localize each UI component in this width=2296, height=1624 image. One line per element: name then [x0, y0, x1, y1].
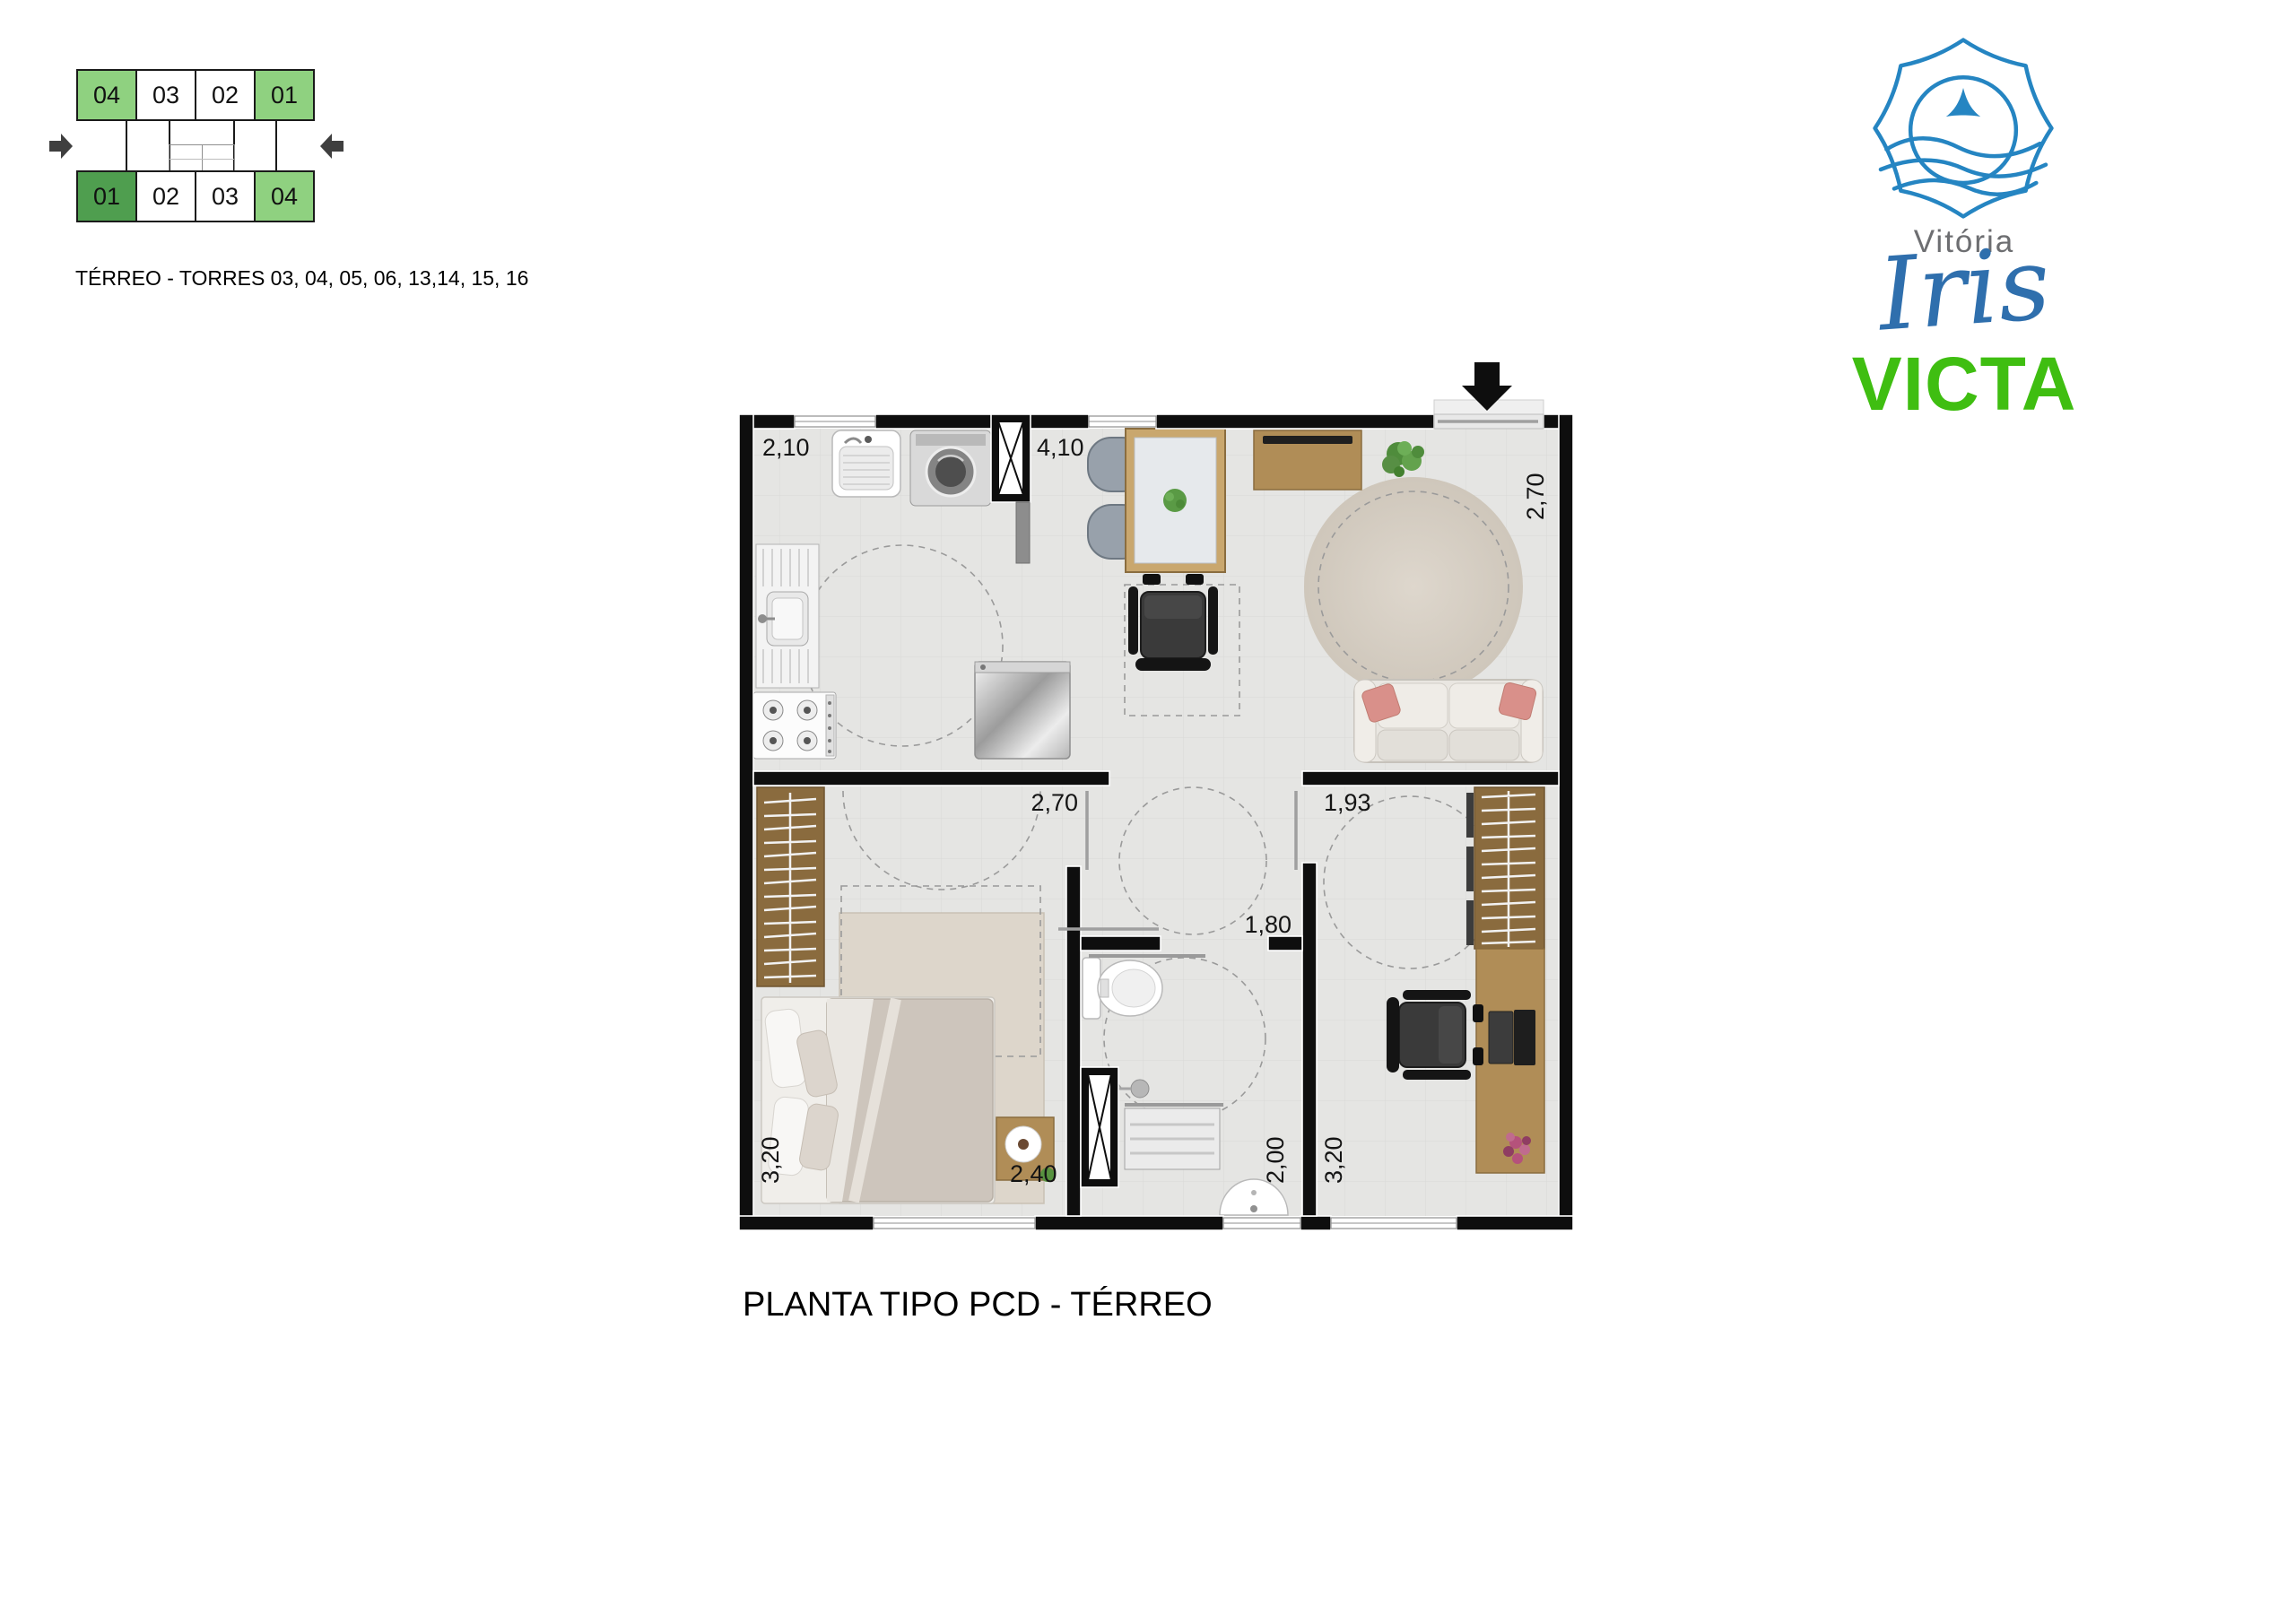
- wall: [1457, 1216, 1573, 1230]
- vitoria-badge-icon: [1867, 32, 2059, 224]
- fridge-hinge: [980, 664, 986, 670]
- wall: [1300, 1216, 1331, 1230]
- wall: [1156, 414, 1434, 429]
- toilet-hinge: [1100, 979, 1109, 997]
- badge-wave-1: [1886, 138, 2039, 156]
- burner-center: [770, 737, 777, 744]
- arrow-shape: [49, 134, 73, 159]
- entry-arrow-right-icon: [320, 134, 344, 159]
- unit-cell-bottom-01: 01: [76, 170, 137, 222]
- nightstand-disc-center: [1018, 1139, 1029, 1150]
- wall: [1081, 936, 1161, 951]
- stair-core-left: [126, 119, 170, 172]
- badge-wave-2: [1881, 161, 2046, 177]
- unit-cell-bottom-03: 03: [195, 170, 256, 222]
- refrigerator: [975, 662, 1070, 759]
- laptop-screen: [1514, 1010, 1535, 1065]
- dim-bathroom-width: 1,80: [1244, 911, 1291, 938]
- table-centerpiece-leaf: [1176, 499, 1185, 508]
- dim-bedroom1-depth: 3,20: [757, 1136, 784, 1184]
- wardrobe-door-strip: [1466, 900, 1474, 945]
- shaft-pillar: [1016, 502, 1030, 563]
- wall: [1302, 863, 1317, 1216]
- table-centerpiece-leaf: [1165, 492, 1174, 501]
- wall: [1302, 771, 1559, 786]
- ventilation-shaft: [1081, 1067, 1118, 1187]
- wardrobe-door-strip: [1466, 847, 1474, 891]
- fridge-top: [975, 662, 1070, 673]
- toilet-bowl: [1112, 969, 1155, 1007]
- dim-kitchen-living-width: 4,10: [1037, 434, 1084, 461]
- unit-cell-top-03: 03: [135, 69, 196, 121]
- bathroom-drain: [1251, 1190, 1257, 1195]
- dim-bedroom2-depth: 3,20: [1320, 1136, 1347, 1184]
- wall: [875, 414, 1089, 429]
- wall: [739, 1216, 874, 1230]
- dim-living-depth: 2,70: [1522, 473, 1549, 520]
- washer-drum: [935, 456, 966, 487]
- tv: [1263, 436, 1352, 444]
- washer-panel: [916, 434, 986, 446]
- arrow-shape: [320, 134, 344, 159]
- wall: [1268, 936, 1302, 951]
- dim-bathroom-depth: 2,00: [1262, 1136, 1289, 1184]
- unit-cell-top-01: 01: [254, 69, 315, 121]
- wall: [753, 771, 1109, 786]
- corridor-grid: [169, 144, 235, 172]
- tank-drain: [865, 436, 872, 443]
- unit-cell-bottom-04: 04: [254, 170, 315, 222]
- unit-cell-top-02: 02: [195, 69, 256, 121]
- corridor-grid-line: [170, 159, 234, 160]
- wall: [1559, 414, 1573, 1230]
- wall: [1066, 866, 1081, 1216]
- dim-bedroom2-entry: 1,93: [1324, 789, 1371, 816]
- shower-knob: [1131, 1080, 1149, 1098]
- logo-victa-text: VICTA: [1780, 341, 2148, 428]
- wall: [739, 414, 753, 1230]
- laptop-keyboard: [1489, 1012, 1513, 1064]
- dim-service-width: 2,10: [762, 434, 810, 461]
- badge-star: [1946, 88, 1981, 117]
- floor-plan: 2,10 4,10 2,70 2,70 1,93 1,80 2,00 3,20 …: [739, 359, 1573, 1230]
- sofa-back: [1449, 730, 1519, 760]
- tank-basin: [839, 447, 893, 490]
- sofa-back: [1378, 730, 1448, 760]
- sink-bowl: [772, 598, 803, 639]
- dim-bedroom1-bottom: 2,40: [1010, 1160, 1057, 1187]
- round-rug: [1304, 477, 1523, 696]
- laundry-area: [832, 430, 991, 506]
- unit-cell-bottom-02: 02: [135, 170, 196, 222]
- plan-title: PLANTA TIPO PCD - TÉRREO: [743, 1286, 1213, 1324]
- sofa: [1354, 680, 1543, 762]
- bathroom-faucet: [1250, 1205, 1257, 1212]
- entry-arrow-left-icon: [49, 134, 73, 159]
- logo-iris-text: Iris: [1790, 220, 2138, 360]
- dim-bedroom1-width: 2,70: [1031, 789, 1078, 816]
- burner-center: [804, 707, 811, 714]
- table-centerpiece: [1163, 489, 1187, 512]
- badge-lines: [1875, 40, 2052, 217]
- unit-cell-top-04: 04: [76, 69, 137, 121]
- tower-key-diagram: 04 03 02 01 01 02 03 04: [76, 69, 315, 222]
- burner-center: [804, 737, 811, 744]
- floor-caption: TÉRREO - TORRES 03, 04, 05, 06, 13,14, 1…: [75, 266, 528, 291]
- stove: [753, 692, 836, 759]
- wall: [1035, 1216, 1223, 1230]
- stair-core-right: [233, 119, 277, 172]
- burner-center: [770, 707, 777, 714]
- wardrobe-door-strip: [1466, 793, 1474, 838]
